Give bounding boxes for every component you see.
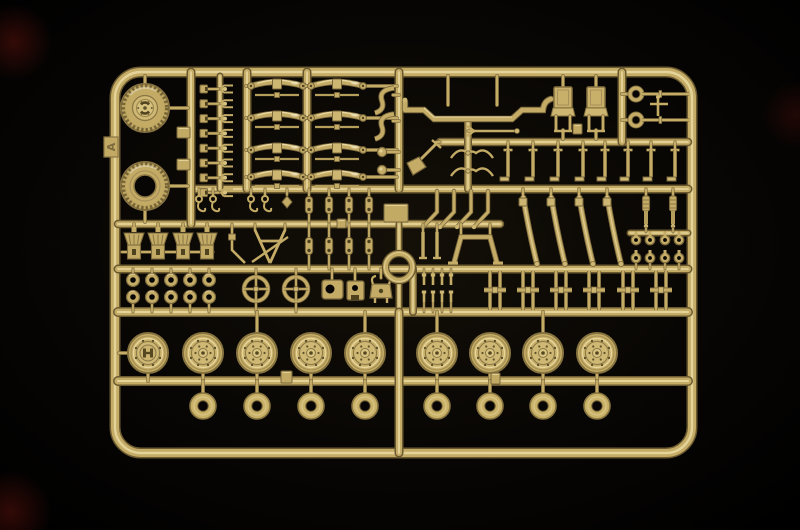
photo-canvas: A <box>0 0 800 530</box>
gate-tab <box>281 371 292 383</box>
gate-tab <box>177 159 190 170</box>
gate-tab <box>573 124 582 134</box>
sprue-photo: A <box>0 0 800 530</box>
gate-tab <box>177 127 190 138</box>
sprue-tab-letter: A <box>105 142 118 151</box>
gate-tab <box>491 373 500 384</box>
gate-tab <box>337 219 346 228</box>
sprue-tab: A <box>104 137 118 157</box>
gate-tab <box>384 204 408 222</box>
